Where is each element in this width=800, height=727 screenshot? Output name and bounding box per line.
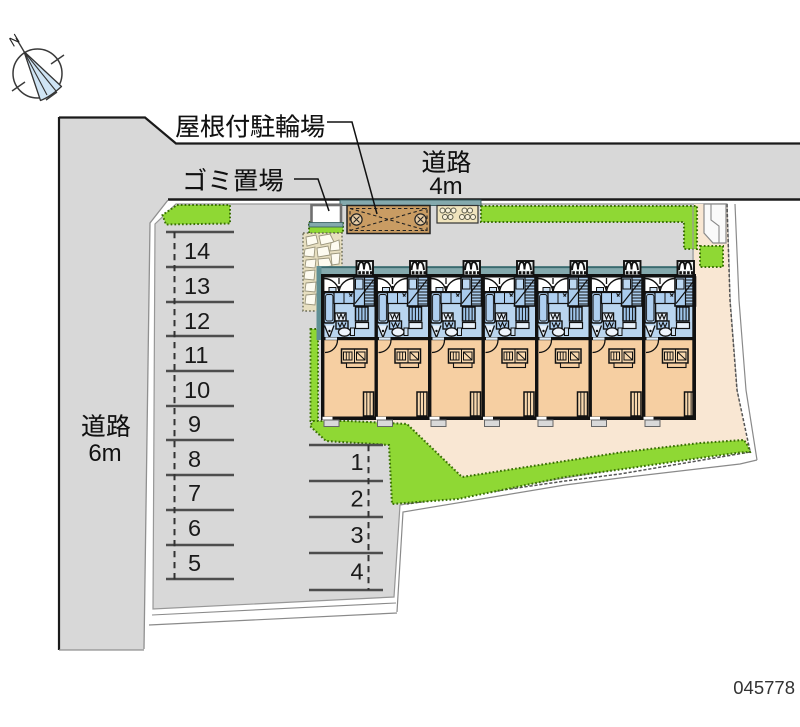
svg-text:7: 7 xyxy=(188,480,201,506)
svg-text:12: 12 xyxy=(184,308,210,334)
svg-text:3: 3 xyxy=(350,522,363,548)
svg-text:1: 1 xyxy=(350,449,363,475)
svg-text:14: 14 xyxy=(184,238,210,264)
svg-text:8: 8 xyxy=(188,446,201,472)
svg-text:045778: 045778 xyxy=(733,677,795,698)
svg-text:5: 5 xyxy=(188,550,201,576)
svg-text:11: 11 xyxy=(184,342,208,368)
svg-text:10: 10 xyxy=(184,377,210,403)
svg-text:9: 9 xyxy=(188,411,201,437)
svg-text:4m: 4m xyxy=(429,173,462,200)
svg-text:6m: 6m xyxy=(88,440,121,467)
svg-text:2: 2 xyxy=(350,486,363,512)
svg-text:4: 4 xyxy=(350,559,363,585)
svg-text:13: 13 xyxy=(184,273,210,299)
svg-text:6: 6 xyxy=(188,515,201,541)
